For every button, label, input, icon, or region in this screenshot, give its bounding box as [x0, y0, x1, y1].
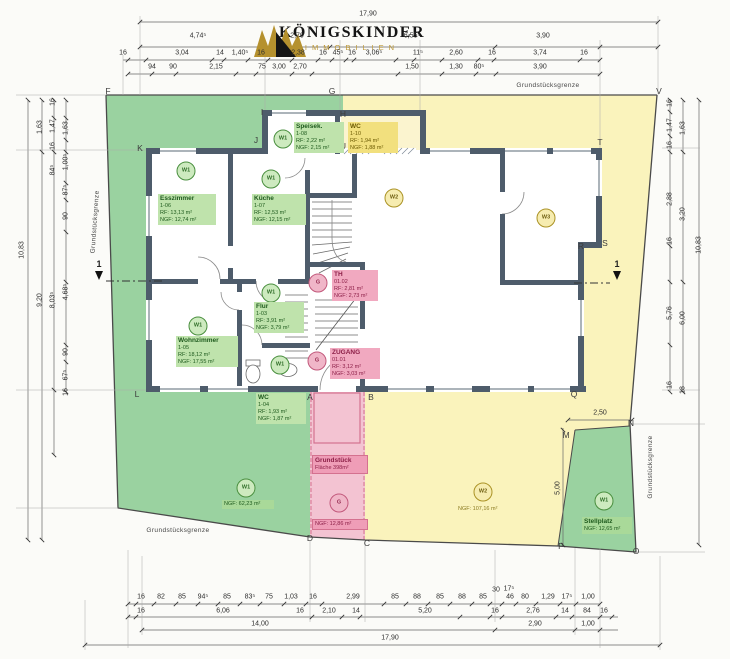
logo: KÖNIGSKINDER IMMOBILIEN [252, 24, 452, 52]
dimension-lines [0, 0, 730, 659]
floorplan-page: KÖNIGSKINDER IMMOBILIEN 17,904,74⁵2,706,… [0, 0, 730, 659]
logo-crown-icon [252, 24, 308, 58]
